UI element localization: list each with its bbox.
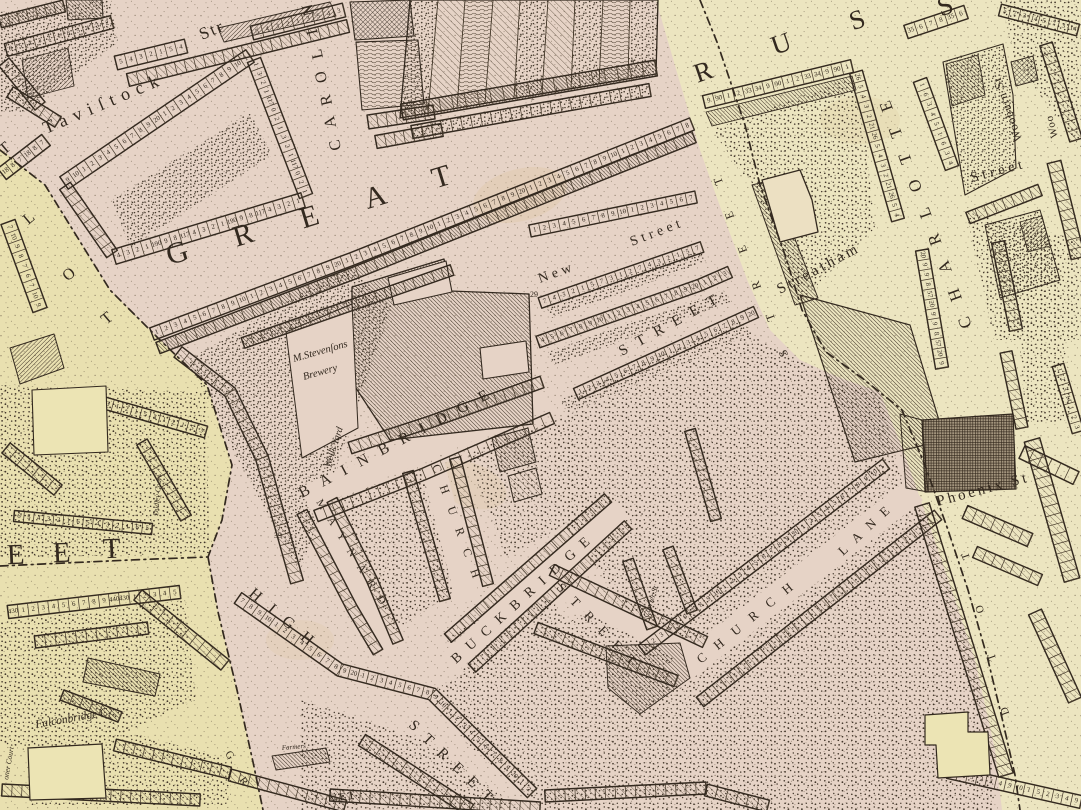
svg-text:1: 1 (66, 518, 70, 525)
svg-text:39: 39 (274, 531, 282, 540)
svg-text:430: 430 (119, 594, 131, 602)
svg-text:E: E (52, 537, 71, 570)
svg-text:29: 29 (530, 290, 538, 299)
svg-text:T: T (102, 533, 121, 566)
svg-text:1: 1 (125, 523, 129, 530)
svg-text:430: 430 (8, 607, 20, 615)
svg-text:E: E (6, 539, 25, 572)
